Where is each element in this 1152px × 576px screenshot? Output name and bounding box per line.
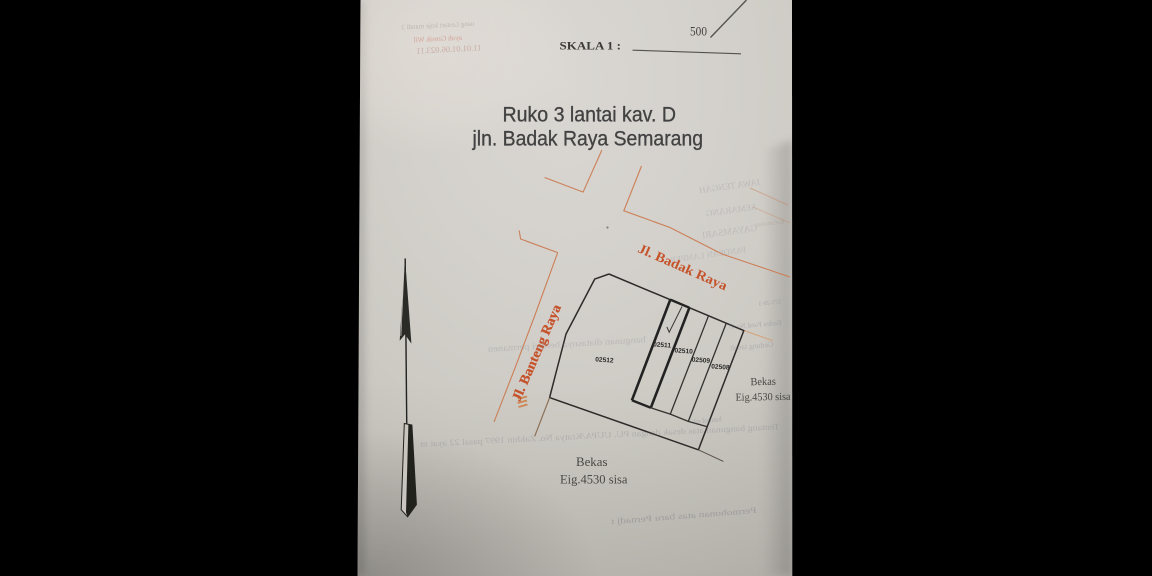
svg-text:02509: 02509: [692, 357, 711, 365]
svg-text:500: 500: [690, 24, 707, 38]
svg-text:jln. Badak Raya Semarang: jln. Badak Raya Semarang: [472, 128, 703, 151]
svg-text:SKALA 1 :: SKALA 1 :: [560, 41, 622, 53]
svg-text:Bekas: Bekas: [576, 455, 608, 469]
svg-text:02511: 02511: [653, 341, 672, 349]
svg-text:Eig.4530 sisa: Eig.4530 sisa: [560, 472, 628, 487]
svg-text:Bekas: Bekas: [750, 376, 776, 388]
svg-text:Eig.4530 sisa: Eig.4530 sisa: [735, 391, 790, 404]
svg-text:Ruko 3 lantai kav. D: Ruko 3 lantai kav. D: [503, 104, 677, 127]
svg-text:02512: 02512: [595, 356, 614, 364]
svg-text:02510: 02510: [674, 347, 693, 355]
svg-text:02508: 02508: [711, 363, 730, 371]
